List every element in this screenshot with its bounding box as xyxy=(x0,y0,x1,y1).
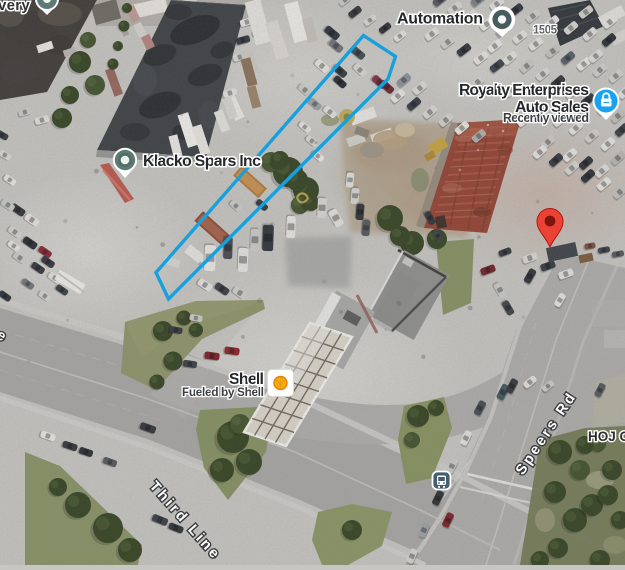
svg-text:Recently viewed: Recently viewed xyxy=(503,111,589,125)
svg-text:Fueled by Shell: Fueled by Shell xyxy=(182,385,264,399)
svg-text:Klacko Spars Inc: Klacko Spars Inc xyxy=(143,153,261,170)
svg-text:Royalty Enterprises: Royalty Enterprises xyxy=(459,82,589,99)
svg-text:1505: 1505 xyxy=(533,25,558,37)
svg-text:HOJ C: HOJ C xyxy=(588,429,625,444)
svg-text:Automation: Automation xyxy=(397,11,483,28)
svg-text:very: very xyxy=(0,0,30,14)
